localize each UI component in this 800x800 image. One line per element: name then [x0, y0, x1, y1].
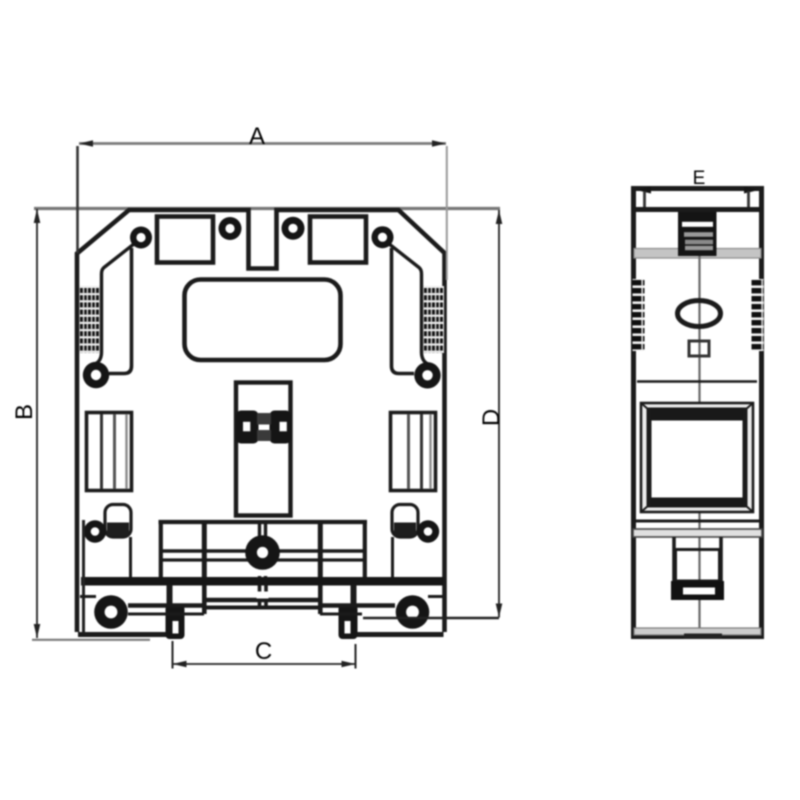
svg-text:C: C — [255, 638, 272, 665]
svg-text:A: A — [249, 123, 265, 150]
svg-text:E: E — [693, 168, 706, 189]
svg-text:D: D — [478, 409, 505, 426]
svg-text:B: B — [11, 404, 38, 420]
